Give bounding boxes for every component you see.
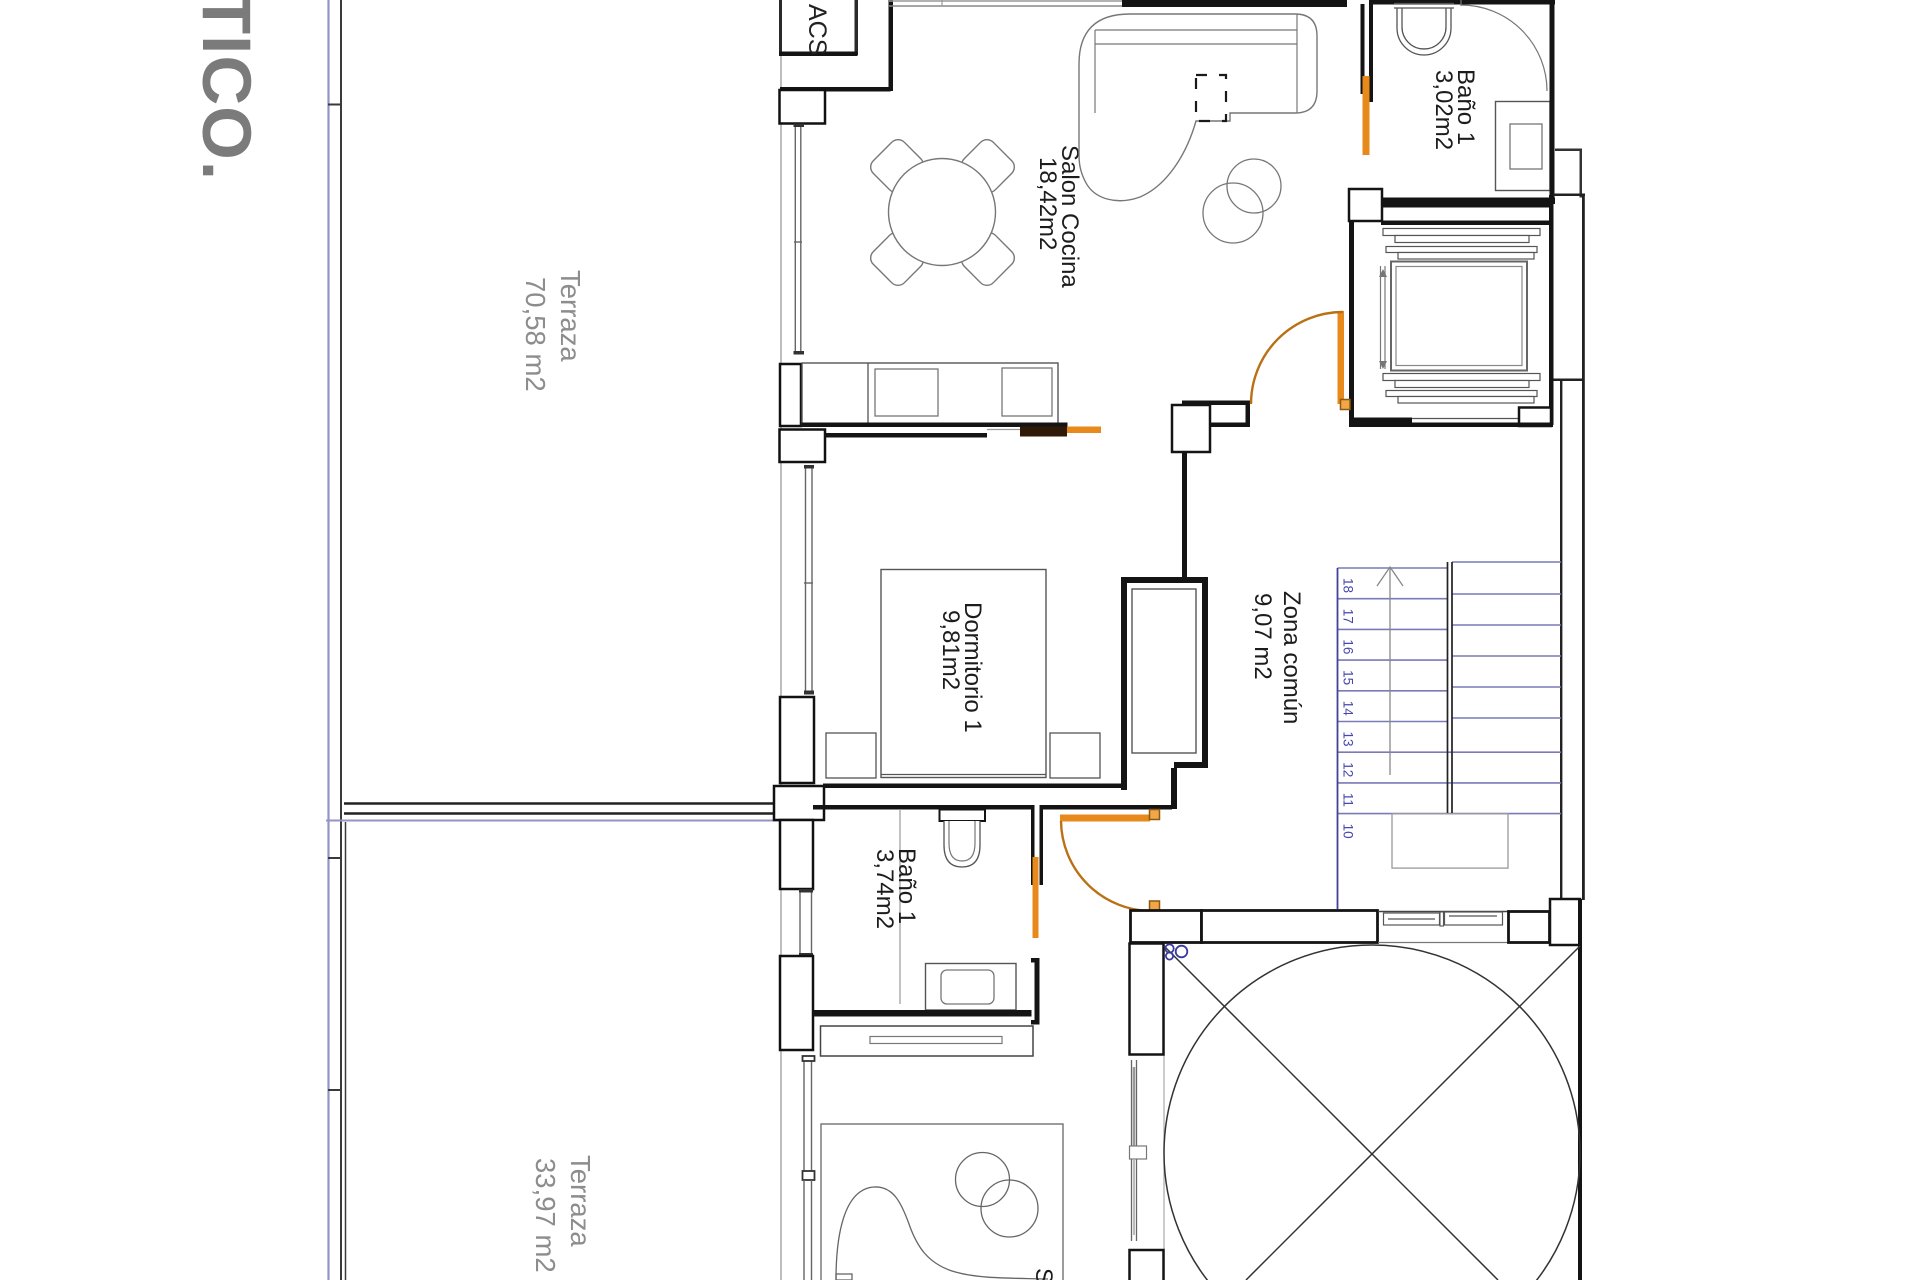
svg-text:10: 10 bbox=[1341, 824, 1356, 839]
svg-text:Zona común: Zona común bbox=[1278, 591, 1305, 724]
svg-text:Terraza: Terraza bbox=[565, 1155, 596, 1247]
svg-text:3,74m2: 3,74m2 bbox=[871, 849, 898, 929]
svg-text:15: 15 bbox=[1341, 670, 1356, 685]
svg-text:9,81m2: 9,81m2 bbox=[937, 610, 964, 690]
svg-text:9,07 m2: 9,07 m2 bbox=[1249, 593, 1276, 680]
svg-text:TICO.: TICO. bbox=[188, 0, 265, 181]
svg-text:17: 17 bbox=[1341, 609, 1356, 624]
svg-text:14: 14 bbox=[1341, 701, 1356, 717]
svg-text:11: 11 bbox=[1341, 793, 1356, 807]
svg-text:3,02m2: 3,02m2 bbox=[1430, 70, 1457, 150]
svg-text:12: 12 bbox=[1341, 762, 1356, 777]
svg-text:33,97 m2: 33,97 m2 bbox=[530, 1158, 561, 1273]
svg-text:16: 16 bbox=[1341, 639, 1356, 654]
svg-text:Sa: Sa bbox=[1030, 1268, 1057, 1280]
svg-text:18: 18 bbox=[1341, 578, 1356, 593]
svg-text:ACS: ACS bbox=[803, 4, 831, 55]
svg-text:13: 13 bbox=[1341, 732, 1356, 747]
svg-text:Terraza: Terraza bbox=[555, 270, 586, 362]
svg-text:18,42m2: 18,42m2 bbox=[1034, 157, 1061, 250]
svg-text:70,58 m2: 70,58 m2 bbox=[520, 277, 551, 392]
